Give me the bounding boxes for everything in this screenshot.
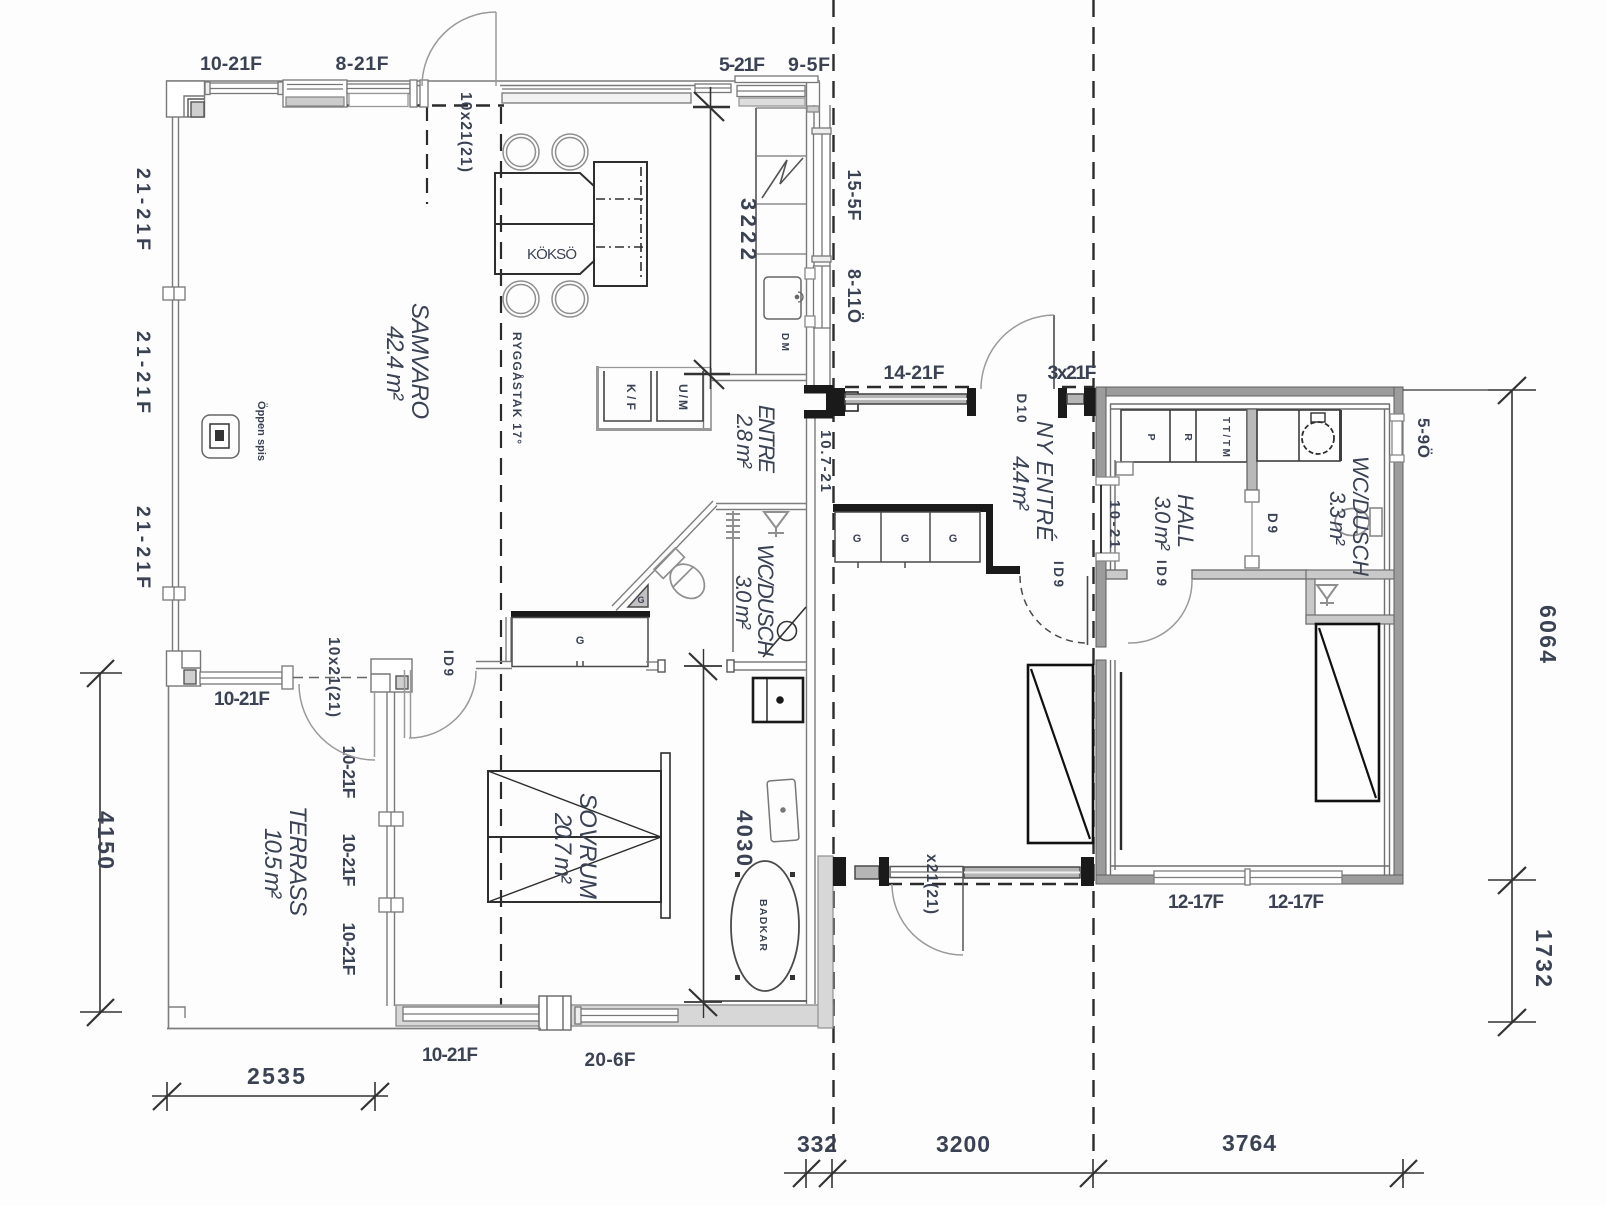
svg-text:TERRASS: TERRASS: [284, 806, 311, 916]
svg-text:U/M: U/M: [676, 384, 690, 410]
svg-text:10.5 m²: 10.5 m²: [259, 828, 286, 899]
svg-text:3764: 3764: [1222, 1130, 1276, 1156]
svg-text:R: R: [1182, 433, 1194, 441]
svg-text:12-17F: 12-17F: [1268, 892, 1324, 913]
svg-text:G: G: [901, 533, 910, 545]
svg-text:G: G: [576, 635, 585, 647]
svg-text:42.4 m²: 42.4 m²: [381, 326, 408, 401]
svg-text:D10: D10: [1014, 394, 1029, 423]
svg-text:20.7 m²: 20.7 m²: [549, 812, 576, 884]
svg-text:5-9Ö: 5-9Ö: [1414, 418, 1433, 458]
svg-text:WC/DUSCH: WC/DUSCH: [1348, 456, 1373, 576]
svg-text:8-21F: 8-21F: [336, 53, 389, 75]
svg-text:10-21: 10-21: [1106, 500, 1123, 548]
svg-text:10-21F: 10-21F: [339, 923, 359, 976]
svg-text:3.3 m²: 3.3 m²: [1325, 491, 1350, 546]
svg-text:HALL: HALL: [1173, 494, 1198, 548]
svg-text:Öppen spis: Öppen spis: [255, 401, 268, 461]
svg-text:332: 332: [797, 1131, 837, 1157]
svg-text:3.0 m²: 3.0 m²: [1150, 496, 1175, 551]
svg-text:K/F: K/F: [624, 384, 638, 410]
svg-text:G: G: [853, 533, 862, 545]
svg-text:20-6F: 20-6F: [585, 1050, 636, 1071]
svg-text:10-21F: 10-21F: [339, 834, 359, 887]
svg-text:8-11Ö: 8-11Ö: [844, 269, 864, 323]
svg-text:SAMVARO: SAMVARO: [406, 303, 433, 419]
svg-text:3200: 3200: [936, 1131, 990, 1157]
svg-text:10.7-21: 10.7-21: [817, 430, 834, 492]
svg-text:10-21F: 10-21F: [339, 746, 359, 799]
svg-text:2.8 m²: 2.8 m²: [732, 413, 757, 469]
svg-text:NY ENTRÉ: NY ENTRÉ: [1032, 421, 1058, 542]
svg-text:3.0 m²: 3.0 m²: [731, 575, 756, 630]
svg-text:10x21(21): 10x21(21): [457, 92, 474, 172]
svg-text:15-5F: 15-5F: [844, 170, 864, 221]
svg-text:DM: DM: [779, 333, 790, 351]
svg-text:TT/TM: TT/TM: [1220, 417, 1231, 457]
svg-text:10-21F: 10-21F: [200, 53, 262, 75]
svg-text:14-21F: 14-21F: [884, 362, 945, 384]
svg-text:SOVRUM: SOVRUM: [574, 793, 601, 899]
svg-text:5-21F: 5-21F: [719, 54, 765, 76]
svg-text:4.4 m²: 4.4 m²: [1008, 456, 1034, 511]
svg-text:10-21F: 10-21F: [214, 689, 270, 710]
svg-text:G: G: [949, 533, 958, 545]
svg-text:x21(21): x21(21): [923, 854, 940, 914]
svg-text:KÖKSÖ: KÖKSÖ: [527, 245, 577, 263]
svg-text:9-5F: 9-5F: [788, 54, 830, 76]
svg-text:RYGGÅSTAK 17°: RYGGÅSTAK 17°: [510, 332, 525, 444]
svg-text:10-21F: 10-21F: [422, 1045, 478, 1066]
svg-text:P: P: [1145, 433, 1157, 440]
svg-text:3x21F: 3x21F: [1048, 362, 1097, 384]
svg-text:12-17F: 12-17F: [1168, 892, 1224, 913]
svg-text:G: G: [637, 595, 644, 605]
